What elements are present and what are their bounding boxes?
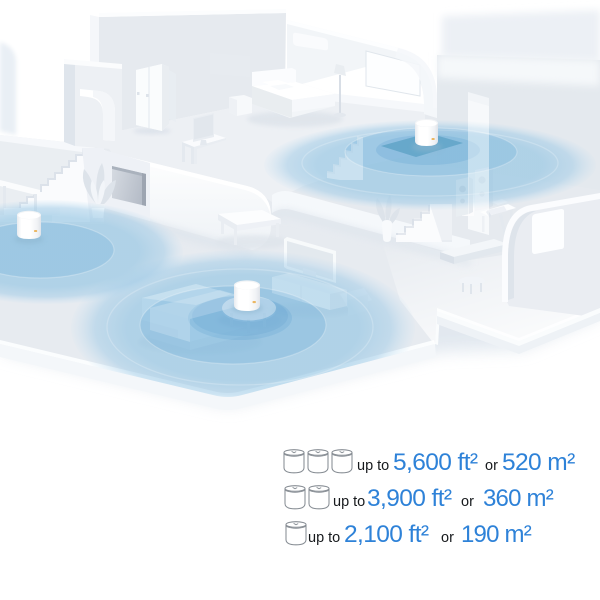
svg-text:or: or — [441, 530, 454, 546]
svg-text:520 m²: 520 m² — [502, 449, 575, 476]
svg-text:5,600 ft²: 5,600 ft² — [393, 449, 478, 476]
svg-text:up to: up to — [308, 530, 340, 546]
svg-text:3,900 ft²: 3,900 ft² — [367, 485, 452, 512]
svg-text:or: or — [461, 494, 474, 510]
svg-text:360 m²: 360 m² — [483, 485, 554, 512]
svg-text:or: or — [485, 458, 498, 474]
svg-text:up to: up to — [333, 494, 365, 510]
svg-text:up to: up to — [357, 458, 389, 474]
svg-text:190 m²: 190 m² — [461, 521, 532, 548]
svg-text:2,100 ft²: 2,100 ft² — [344, 521, 429, 548]
